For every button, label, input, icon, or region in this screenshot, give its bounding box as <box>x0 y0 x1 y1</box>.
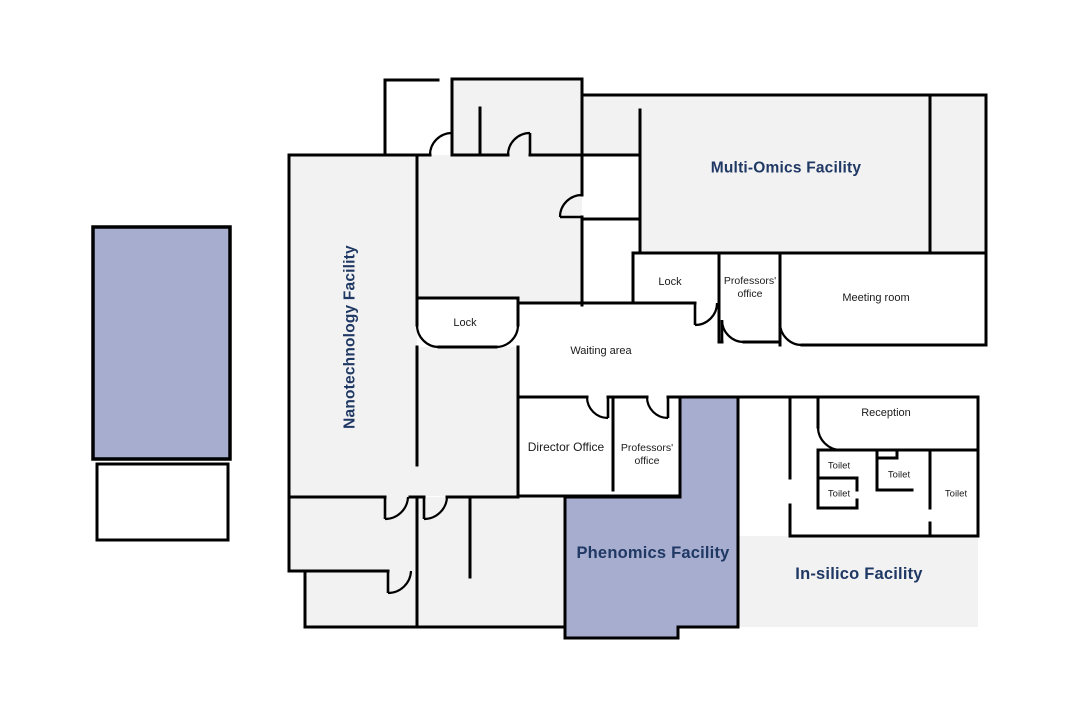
room-strip-lower <box>582 219 640 305</box>
label-in-silico-facility: In-silico Facility <box>795 565 923 583</box>
room-open-annex <box>385 80 438 155</box>
room-bottom-left-lower <box>305 571 417 627</box>
room-strip-upper <box>582 155 640 219</box>
label-professors-office-lower-line1: Professors' <box>621 442 673 454</box>
room-top-lab <box>452 79 582 155</box>
label-reception: Reception <box>861 407 911 419</box>
detached-highlight-block <box>93 227 230 459</box>
label-toilet-1: Toilet <box>828 461 851 472</box>
floor-plan: Nanotechnology Facility Multi-Omics Faci… <box>0 0 1080 720</box>
label-toilet-2: Toilet <box>828 489 851 500</box>
room-bottom-middle <box>417 497 565 627</box>
room-waiting-area <box>518 303 790 397</box>
room-mid-lab <box>417 155 582 305</box>
room-below-lock <box>417 347 518 496</box>
label-meeting-room: Meeting room <box>842 292 909 304</box>
label-toilet-3: Toilet <box>888 470 911 481</box>
label-waiting-area: Waiting area <box>570 345 632 357</box>
floor-plan-canvas: Nanotechnology Facility Multi-Omics Faci… <box>0 0 1080 720</box>
label-director-office: Director Office <box>528 440 605 454</box>
label-phenomics-facility: Phenomics Facility <box>576 544 730 562</box>
room-corridor <box>738 397 790 536</box>
label-professors-office-top-line2: office <box>738 288 763 300</box>
label-professors-office-lower-line2: office <box>635 455 660 467</box>
room-bottom-left-upper <box>289 497 417 571</box>
label-toilet-4: Toilet <box>945 489 968 500</box>
label-professors-office-top-line1: Professors' <box>724 275 776 287</box>
label-lock-top: Lock <box>658 276 682 288</box>
label-multi-omics-facility: Multi-Omics Facility <box>711 160 862 177</box>
label-lock-side: Lock <box>453 317 477 329</box>
detached-white-block <box>97 464 228 540</box>
label-nanotechnology-facility: Nanotechnology Facility <box>342 245 359 429</box>
